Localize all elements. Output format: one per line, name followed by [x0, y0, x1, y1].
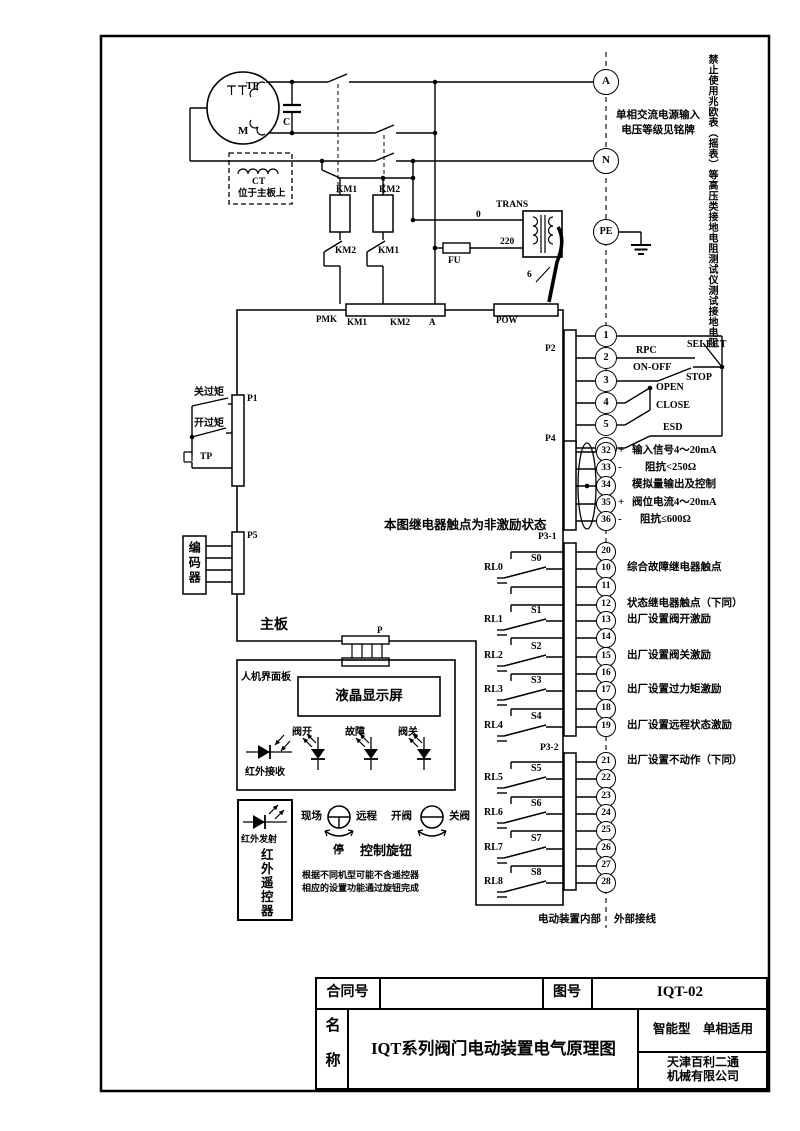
terminal-desc-19: 出厂设置远程状态激励	[627, 720, 732, 732]
p31-label: P3-1	[538, 532, 556, 542]
ir-transmit-label: 红外发射	[241, 835, 277, 845]
terminal-a: A	[593, 69, 619, 95]
motor-tp-label: TP	[246, 81, 259, 92]
relay-label-RL5: RL5	[484, 772, 503, 783]
terminal-circle-17: 17	[596, 681, 616, 701]
relay-label-RL6: RL6	[484, 807, 503, 818]
knob-remote-label: 远程	[356, 811, 377, 823]
pmk-connector	[346, 304, 445, 316]
pmk-label: PMK	[316, 315, 337, 325]
supply-note-line1: 单相交流电源输入	[610, 110, 706, 122]
switch-label-S5: S5	[531, 763, 542, 774]
ir-receive-label: 红外接收	[245, 767, 285, 778]
junction-dots	[190, 80, 725, 489]
contract-label: 合同号	[317, 985, 378, 1000]
terminal-desc-32: 输入信号4～20mA	[632, 445, 717, 457]
ir-tx-diode	[253, 815, 265, 829]
terminal-circle-25: 25	[596, 821, 616, 841]
km2-coil	[373, 195, 393, 232]
relay-label-RL2: RL2	[484, 650, 503, 661]
ir-remote-label: 红外遥控器	[258, 848, 272, 918]
terminal-circle-14: 14	[596, 628, 616, 648]
led-diode	[311, 749, 325, 759]
switch-label-S2: S2	[531, 641, 542, 652]
terminal-circle-28: 28	[596, 873, 616, 893]
lcd-label: 液晶显示屏	[298, 689, 440, 704]
terminal-desc-13: 出厂设置阀开激励	[627, 614, 711, 626]
p31-connector	[564, 543, 576, 736]
km1-nc-label: KM2	[335, 246, 356, 256]
p5-connector	[232, 532, 244, 594]
drawing-no-value: IQT-02	[594, 984, 766, 1001]
encoder-label: 编码器	[187, 541, 200, 591]
terminal-circle-18: 18	[596, 699, 616, 719]
hmi-panel-label: 人机界面板	[241, 672, 291, 683]
knob-close-label: 关阀	[449, 811, 470, 823]
tap220-label: 220	[500, 237, 514, 247]
p32-label: P3-2	[540, 743, 558, 753]
rpc-label: RPC	[636, 345, 657, 356]
trans-label: TRANS	[496, 200, 528, 210]
switch-label-S1: S1	[531, 605, 542, 616]
relay-blade	[504, 689, 546, 700]
wire-count-label: 6	[527, 270, 532, 280]
tp-thermal-contact	[184, 452, 192, 462]
esd-label: ESD	[663, 422, 682, 433]
transformer-coils	[533, 215, 553, 253]
relay-blade	[504, 655, 546, 666]
company-line1: 天津百利二通	[640, 1056, 766, 1069]
led-label-1: 阀开	[292, 727, 312, 738]
terminal-desc-33: 阻抗<250Ω	[645, 462, 696, 474]
ct-label: CT	[252, 177, 265, 187]
terminal-circle-1: 1	[595, 325, 617, 347]
remote-note2: 相应的设置功能通过旋钮完成	[302, 884, 419, 894]
pmk-km2-label: KM2	[390, 318, 410, 328]
terminal-desc-10: 综合故障继电器触点	[627, 562, 722, 574]
terminal-sign-32: +	[618, 444, 624, 456]
terminal-circle-10: 10	[596, 559, 616, 579]
knob-stop-label: 停	[333, 844, 344, 856]
switch-label-S0: S0	[531, 553, 542, 564]
relay-blade	[504, 619, 546, 630]
terminal-circle-4: 4	[595, 392, 617, 414]
relay-state-note: 本图继电器触点为非激励状态	[384, 519, 547, 533]
relay-blade	[504, 777, 546, 788]
terminal-circle-36: 36	[596, 511, 616, 531]
relay-blade	[504, 881, 546, 892]
km2-coil-label: KM2	[379, 185, 400, 195]
relay-blade	[504, 725, 546, 736]
wire-count-slash	[536, 267, 550, 282]
ir-rx-diode	[258, 745, 270, 759]
switch-label-S4: S4	[531, 711, 542, 722]
supply-note-line2: 电压等级见铭牌	[610, 125, 706, 137]
led-diode	[364, 749, 378, 759]
terminal-circle-11: 11	[596, 577, 616, 597]
km1-coil	[330, 195, 350, 232]
terminal-desc-35: 阀位电流4～20mA	[632, 497, 717, 509]
knob-open-label: 开阀	[391, 811, 412, 823]
ct-note: 位于主板上	[238, 189, 286, 199]
schematic-page: A N PE 禁止使用兆欧表（摇表）等高压类接地电阻测试仪测试接地电阻 单相交流…	[0, 0, 800, 1131]
motor-m-label: M	[238, 125, 248, 137]
terminal-pe: PE	[593, 219, 619, 245]
terminal-desc-36: 阻抗≤600Ω	[640, 514, 691, 526]
capacitor-label: C	[283, 117, 290, 128]
terminal-desc-17: 出厂设置过力矩激励	[627, 684, 722, 696]
p32-connector	[564, 753, 576, 890]
external-label: 外部接线	[614, 914, 656, 926]
terminal-desc-15: 出厂设置阀关激励	[627, 650, 711, 662]
open-torque-label: 开过矩	[194, 418, 224, 429]
relay-label-RL1: RL1	[484, 614, 503, 625]
terminal-circle-22: 22	[596, 769, 616, 789]
motor-tp-contact	[227, 86, 247, 95]
company-line2: 机械有限公司	[640, 1070, 766, 1083]
tp-contact-label: TP	[200, 452, 212, 462]
led-label-2: 故障	[345, 727, 365, 738]
relay-label-RL7: RL7	[484, 842, 503, 853]
switch-label-S6: S6	[531, 798, 542, 809]
led-label-3: 阀关	[398, 727, 418, 738]
pmk-a-label: A	[429, 318, 436, 328]
open-label: OPEN	[656, 382, 684, 393]
warning-vertical-note: 禁止使用兆欧表（摇表）等高压类接地电阻测试仪测试接地电阻	[706, 54, 717, 349]
relay-blade	[504, 812, 546, 823]
p5-label: P5	[247, 531, 258, 541]
p2-connector	[564, 330, 576, 448]
p4-connector	[564, 441, 576, 530]
km1-coil-label: KM1	[336, 185, 357, 195]
terminal-sign-35: +	[618, 496, 624, 508]
fuse-label: FU	[448, 256, 461, 266]
close-torque-label: 关过矩	[194, 387, 224, 398]
p1-label: P1	[247, 394, 258, 404]
relay-label-RL4: RL4	[484, 720, 503, 731]
p-connector-top	[342, 636, 389, 644]
terminal-n: N	[593, 148, 619, 174]
remote-note1: 根据不同机型可能不含遥控器	[302, 871, 419, 881]
drawing-title: IQT系列阀门电动装置电气原理图	[350, 1040, 637, 1058]
switch-label-S3: S3	[531, 675, 542, 686]
knob-title-label: 控制旋钮	[360, 844, 412, 858]
terminal-desc-34: 模拟量输出及控制	[632, 479, 716, 491]
transformer-box	[523, 211, 562, 257]
relay-blade	[504, 567, 546, 578]
ct-coil	[238, 169, 278, 174]
terminal-circle-3: 3	[595, 370, 617, 392]
terminal-desc-12: 状态继电器触点（下同）	[627, 598, 743, 610]
stop-label: STOP	[686, 372, 712, 383]
p4-label: P4	[545, 434, 556, 444]
switch-label-S7: S7	[531, 833, 542, 844]
knob-local-label: 现场	[301, 811, 322, 823]
km2-nc-label: KM1	[378, 246, 399, 256]
mainboard-label: 主板	[260, 618, 288, 633]
led-diode	[417, 749, 431, 759]
pmk-km1-label: KM1	[347, 318, 367, 328]
terminal-sign-36: -	[618, 513, 622, 525]
terminal-desc-21: 出厂设置不动作（下同）	[627, 755, 743, 767]
terminal-circle-5: 5	[595, 414, 617, 436]
relay-label-RL8: RL8	[484, 876, 503, 887]
p1-connector	[232, 395, 244, 486]
generated-graphics	[243, 336, 596, 897]
onoff-label: ON-OFF	[633, 362, 671, 373]
close-label: CLOSE	[656, 400, 690, 411]
terminal-circle-2: 2	[595, 347, 617, 369]
relay-blade	[504, 847, 546, 858]
name-label: 名称	[323, 1017, 340, 1083]
relay-label-RL0: RL0	[484, 562, 503, 573]
drawing-no-label: 图号	[544, 985, 590, 1000]
terminal-circle-19: 19	[596, 717, 616, 737]
terminal-sign-33: -	[618, 461, 622, 473]
internal-label: 电动装置内部	[538, 914, 601, 926]
secondary-bundle	[549, 227, 562, 302]
tap0-label: 0	[476, 210, 481, 220]
fuse-symbol	[443, 243, 470, 253]
switch-label-S8: S8	[531, 867, 542, 878]
pow-label: POW	[496, 316, 518, 326]
relay-label-RL3: RL3	[484, 684, 503, 695]
p2-label: P2	[545, 344, 556, 354]
variant-note: 智能型 单相适用	[640, 1023, 766, 1037]
select-label: SELECT	[687, 339, 726, 350]
p-label: P	[377, 626, 383, 636]
terminal-circle-34: 34	[596, 476, 616, 496]
